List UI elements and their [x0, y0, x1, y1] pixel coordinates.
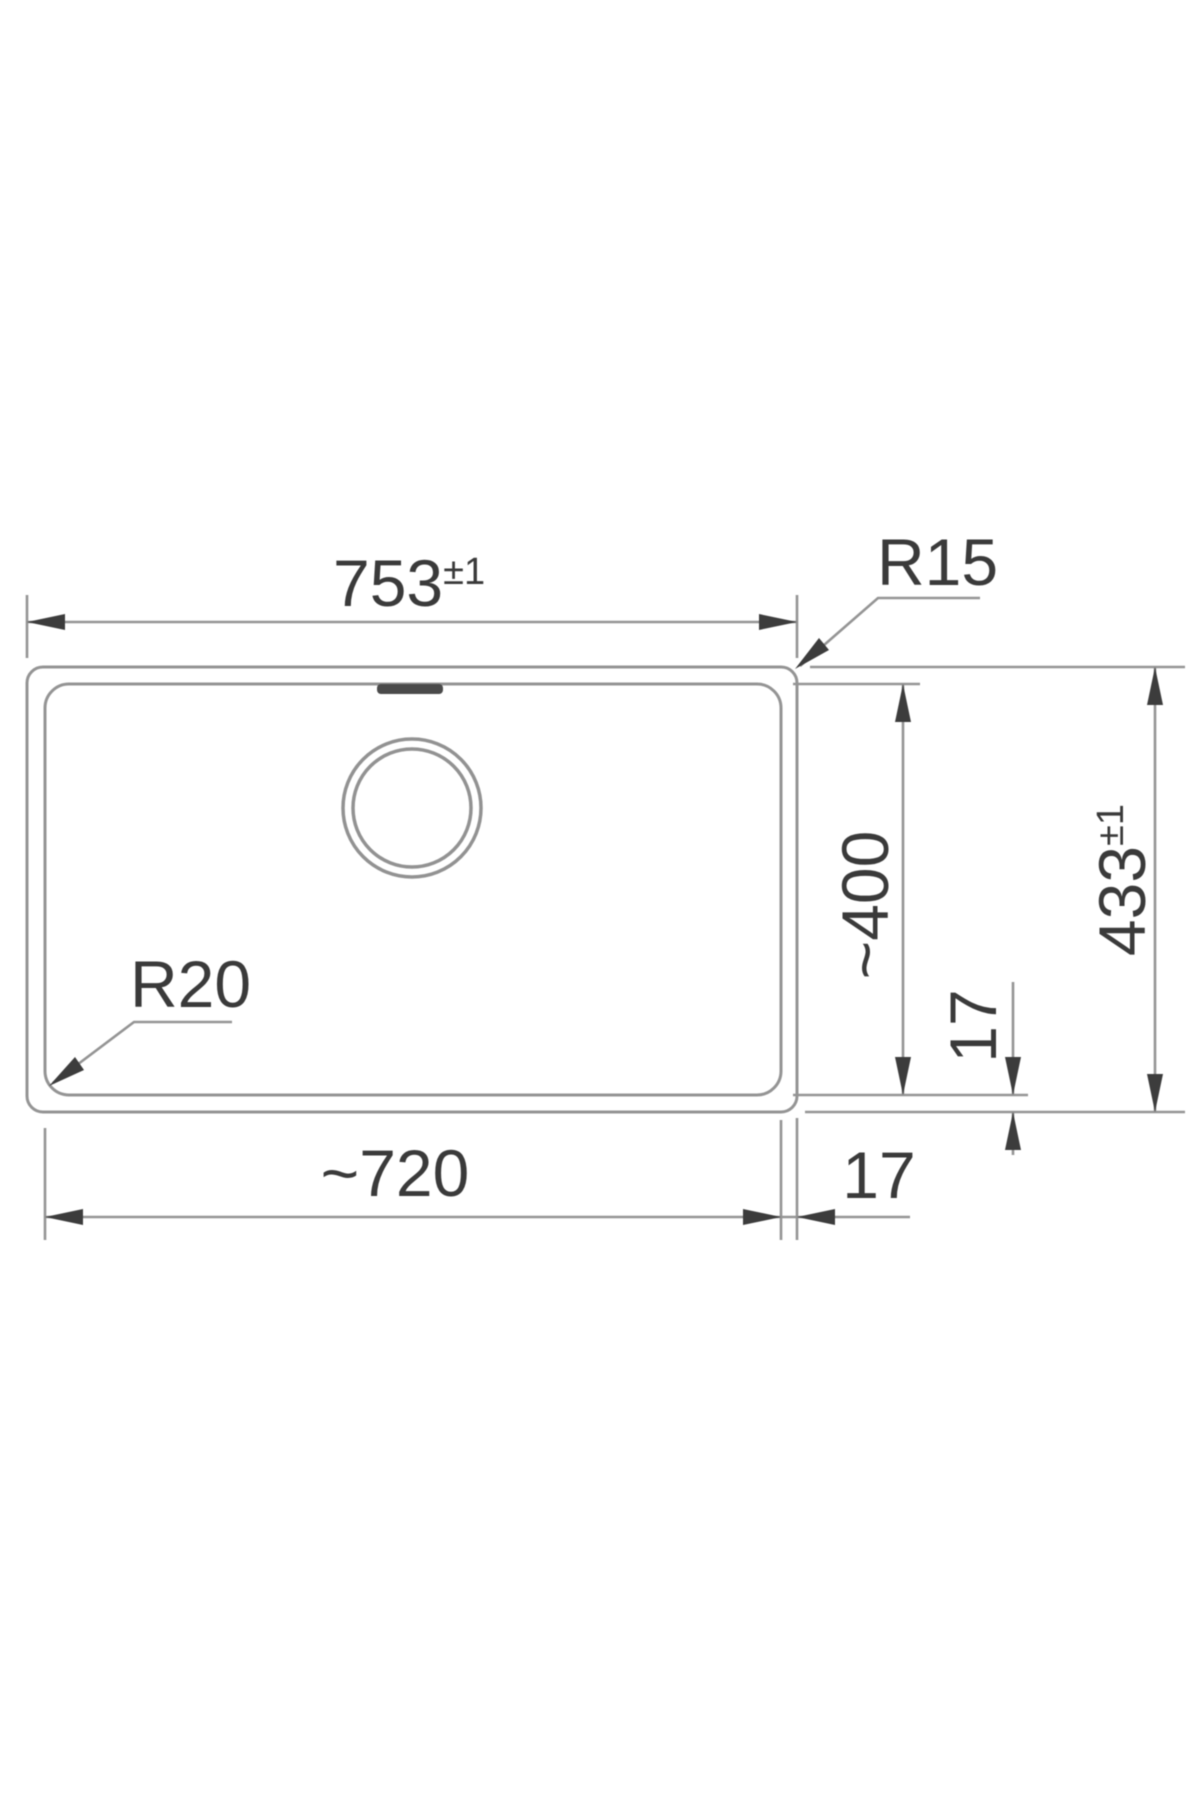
sink-dimension-drawing: 753±1 R15 ~400 433±1 17 R20 ~720 17 — [0, 0, 1200, 1800]
arrow-rim-right-lower — [1005, 1112, 1021, 1150]
label-bowl-depth: ~400 — [828, 831, 902, 980]
overflow-slot — [377, 684, 443, 694]
leader-line-r20 — [53, 1022, 232, 1083]
label-overall-width: 753±1 — [333, 546, 485, 620]
drain-hole-inner-circle — [353, 749, 471, 867]
arrow-overall-depth-bottom — [1147, 1074, 1163, 1112]
drawing-layer: 753±1 R15 ~400 433±1 17 R20 ~720 17 — [27, 525, 1185, 1240]
arrow-overall-depth-top — [1147, 667, 1163, 705]
label-overall-depth-value: 433 — [1085, 846, 1159, 956]
dimension-lines — [27, 598, 1155, 1217]
arrow-bowl-width-left — [45, 1209, 83, 1225]
arrow-leader-r15 — [795, 638, 829, 669]
technical-drawing-page: 753±1 R15 ~400 433±1 17 R20 ~720 17 — [0, 0, 1200, 1800]
label-bowl-width: ~720 — [321, 1136, 470, 1210]
label-corner-radius-bowl: R20 — [130, 947, 251, 1021]
label-corner-radius-outer: R15 — [877, 525, 998, 599]
arrow-bowl-depth-top — [895, 684, 911, 722]
label-overall-width-value: 753 — [333, 546, 443, 620]
arrowheads — [27, 614, 1163, 1225]
label-overall-depth: 433±1 — [1085, 804, 1159, 956]
arrow-bowl-width-right — [743, 1209, 781, 1225]
sink-outer-rim-outline — [27, 667, 797, 1112]
sink-bowl-outline — [45, 684, 781, 1095]
arrow-bowl-depth-bottom — [895, 1057, 911, 1095]
drain-hole-outer-circle — [343, 739, 481, 877]
label-rim-width-bottom: 17 — [842, 1138, 915, 1212]
label-overall-depth-tolerance: ±1 — [1090, 804, 1132, 846]
dimension-labels: 753±1 R15 ~400 433±1 17 R20 ~720 17 — [130, 525, 1159, 1212]
arrow-leader-r20 — [49, 1057, 84, 1086]
arrow-overall-width-left — [27, 614, 65, 630]
label-rim-width-right: 17 — [936, 989, 1010, 1062]
arrow-overall-width-right — [759, 614, 797, 630]
label-overall-width-tolerance: ±1 — [443, 551, 485, 593]
leader-line-r15 — [800, 598, 980, 666]
arrow-rim-bottom — [797, 1209, 835, 1225]
